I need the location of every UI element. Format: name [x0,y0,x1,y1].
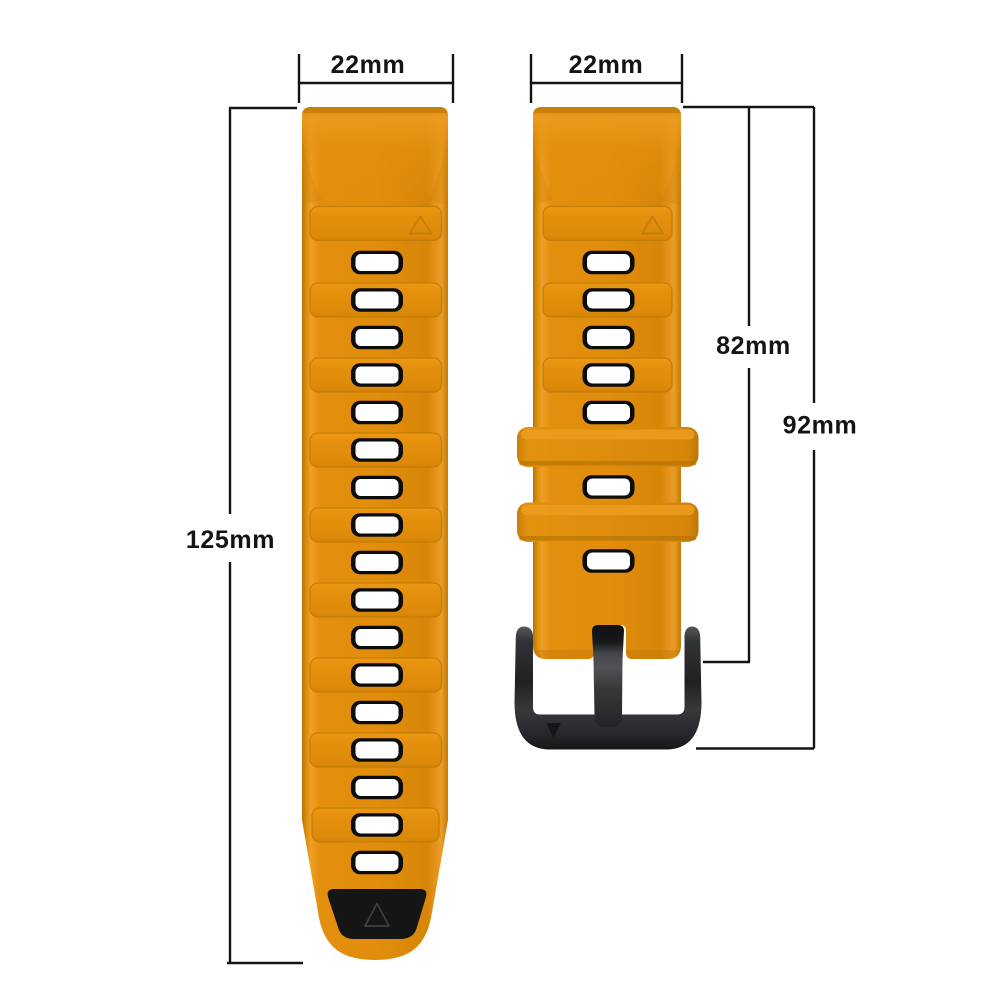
svg-text:92mm: 92mm [783,412,858,440]
svg-text:82mm: 82mm [716,332,791,360]
svg-text:125mm: 125mm [186,526,275,554]
svg-text:22mm: 22mm [331,51,406,79]
svg-text:22mm: 22mm [569,51,644,79]
